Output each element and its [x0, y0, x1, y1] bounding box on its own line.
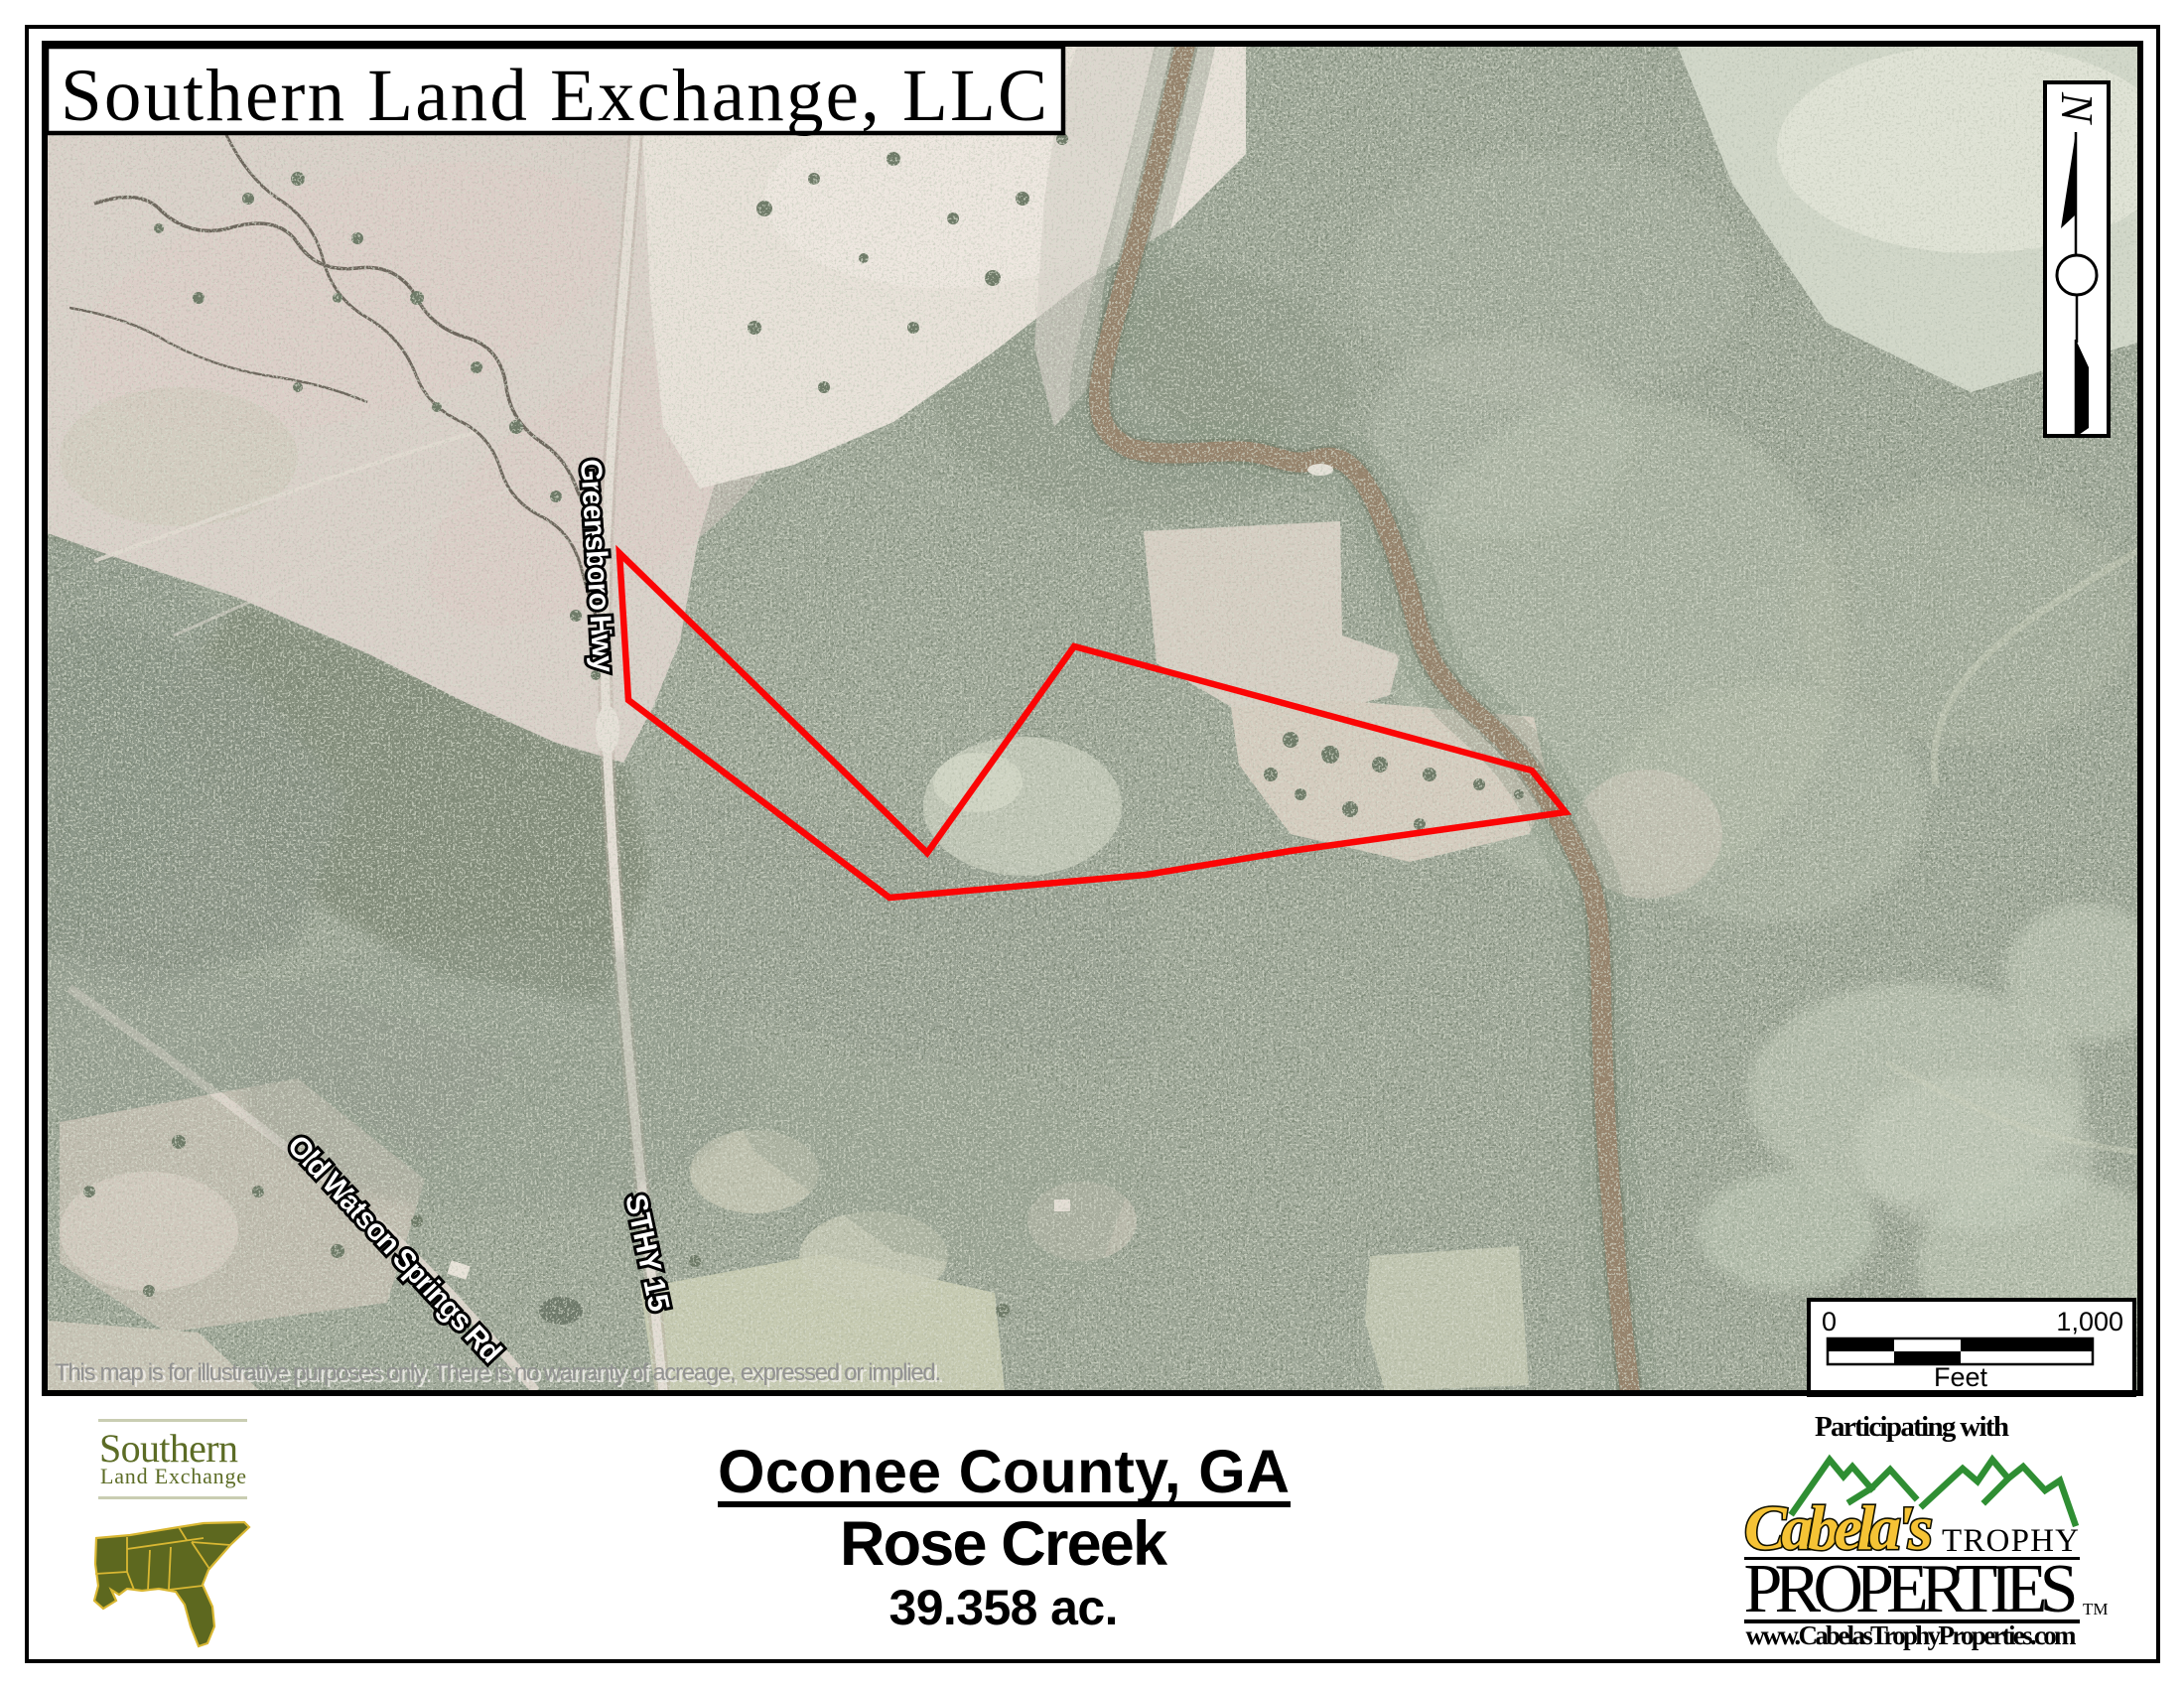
svg-text:This map is for illustrative p: This map is for illustrative purposes on… — [55, 1359, 941, 1386]
svg-text:Feet: Feet — [1934, 1362, 1988, 1392]
svg-text:0: 0 — [1822, 1307, 1837, 1336]
svg-text:Rose Creek: Rose Creek — [840, 1509, 1168, 1579]
svg-text:www.CabelasTrophyProperties.co: www.CabelasTrophyProperties.com — [1746, 1620, 2078, 1650]
svg-text:Oconee County, GA: Oconee County, GA — [718, 1438, 1290, 1505]
svg-text:Land Exchange: Land Exchange — [100, 1464, 246, 1488]
svg-text:TM: TM — [2083, 1600, 2109, 1618]
svg-text:39.358 ac.: 39.358 ac. — [889, 1580, 1119, 1635]
svg-text:Southern Land Exchange, LLC: Southern Land Exchange, LLC — [61, 55, 1047, 137]
svg-text:Participating with: Participating with — [1815, 1411, 2009, 1443]
svg-text:1,000: 1,000 — [2056, 1307, 2123, 1336]
svg-text:N: N — [2052, 91, 2103, 125]
svg-text:PROPERTIES: PROPERTIES — [1744, 1551, 2079, 1627]
